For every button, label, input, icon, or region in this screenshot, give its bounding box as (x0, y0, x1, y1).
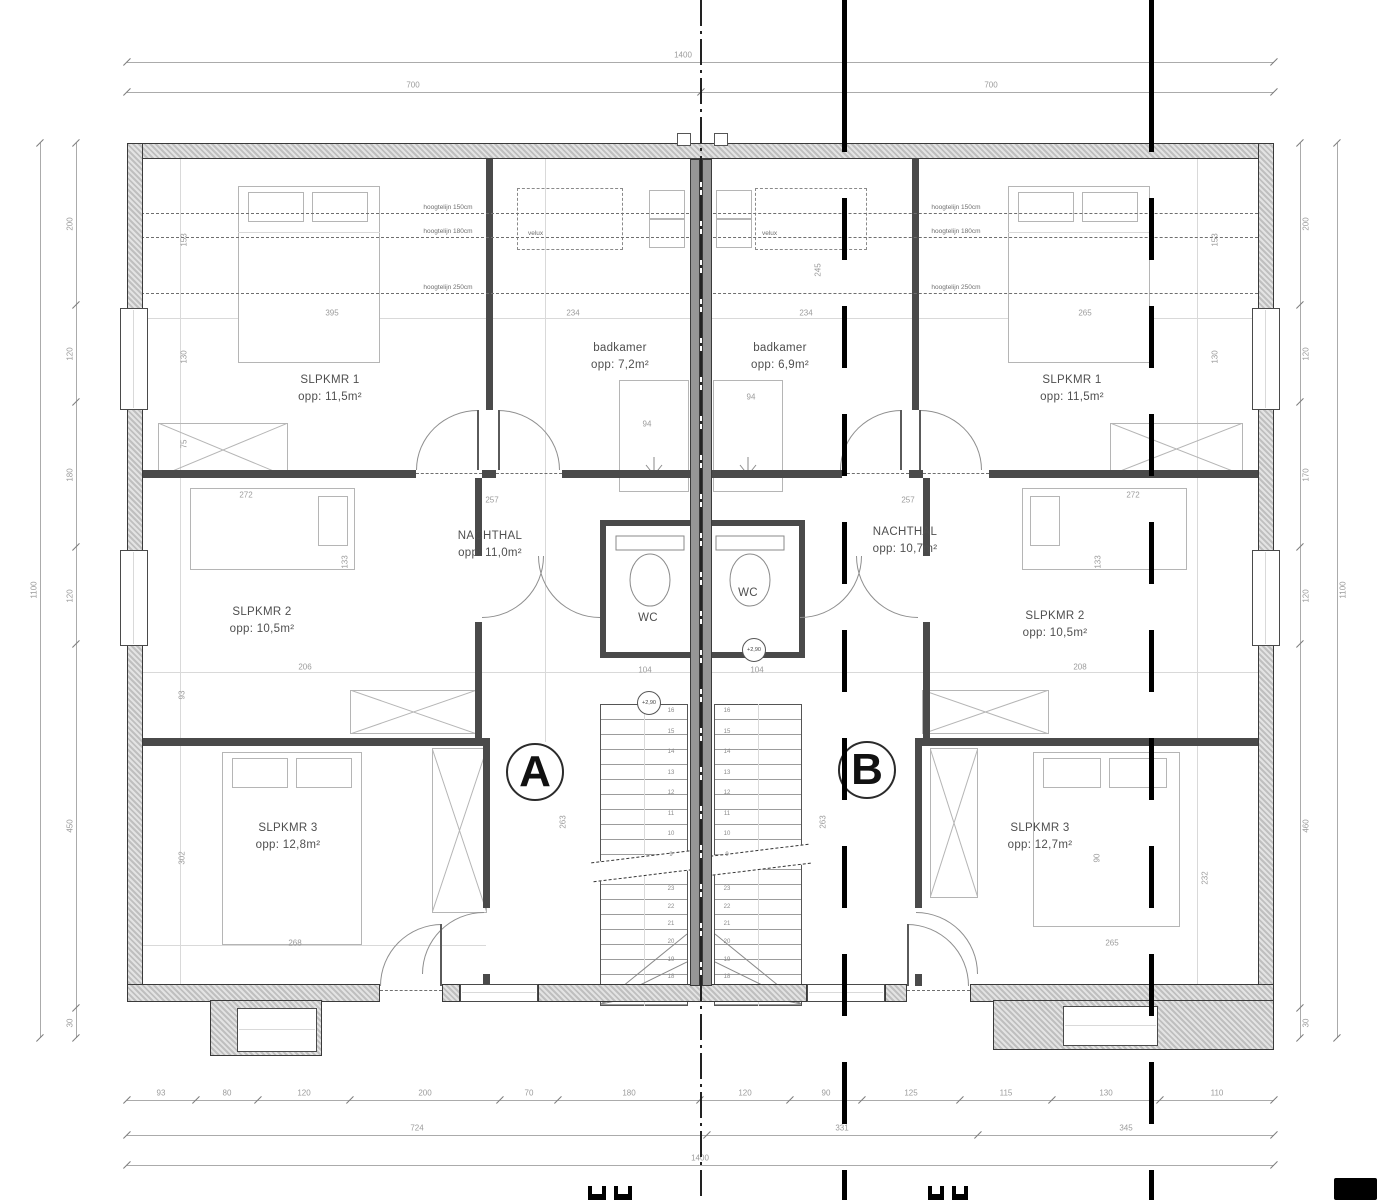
height-line-label: hoogtelijn 180cm (931, 228, 980, 235)
room-name: SLPKMR 3 (960, 820, 1120, 837)
room-name: SLPKMR 2 (182, 604, 342, 621)
roof-height-line (141, 213, 694, 214)
interior-wall (915, 738, 1258, 746)
washbasin (716, 219, 752, 248)
dim-tick (1296, 1034, 1304, 1042)
window (120, 550, 148, 646)
section-cut-line (842, 90, 847, 1200)
dim-tick (1333, 1034, 1341, 1042)
door-arc (380, 924, 442, 986)
stair-step-number: 12 (722, 790, 732, 796)
cropped-text-fragment (956, 1186, 964, 1194)
washbasin (649, 219, 685, 248)
stair-step-numbers: 23222120191817 (722, 886, 732, 998)
dim-label: 130 (1099, 1089, 1112, 1098)
bed-fold-line (238, 232, 380, 233)
interior-wall (141, 470, 416, 478)
door-arc (498, 410, 560, 470)
dim-label: 700 (984, 81, 997, 90)
room-area: opp: 11,0m² (410, 545, 570, 562)
room-label-b-nachthal: NACHTHAL opp: 10,7m² (825, 524, 985, 557)
stair-step-number: 15 (722, 729, 732, 735)
exterior-wall-bottom (442, 984, 460, 1002)
dim-label: 460 (1302, 819, 1311, 832)
dim-label: 90 (822, 1089, 831, 1098)
dim-tick (1270, 1096, 1278, 1104)
threshold (923, 473, 989, 474)
room-area: opp: 12,7m² (960, 837, 1120, 854)
velux-label: velux (528, 230, 543, 237)
dim-label: 180 (622, 1089, 635, 1098)
wardrobe-icon (432, 748, 487, 913)
window-glass-line (462, 992, 536, 993)
dim-label: 263 (559, 815, 568, 828)
room-label-a-slpkmr1: SLPKMR 1 opp: 11,5m² (250, 372, 410, 405)
dim-label: 450 (66, 819, 75, 832)
stair-step-number: 9 (666, 852, 676, 858)
construction-line (1197, 159, 1198, 986)
chimney-tab (714, 133, 728, 146)
room-label-a-badkamer: badkamer opp: 7,2m² (555, 340, 685, 373)
stair-step-number: 12 (666, 790, 676, 796)
room-label-a-slpkmr2: SLPKMR 2 opp: 10,5m² (182, 604, 342, 637)
dim-label: 257 (485, 496, 498, 505)
room-label-a-nachthal: NACHTHAL opp: 11,0m² (410, 528, 570, 561)
room-name: SLPKMR 3 (208, 820, 368, 837)
dim-label: 200 (1302, 217, 1311, 230)
dim-label: 234 (799, 309, 812, 318)
door-leaf (498, 410, 500, 470)
dim-label: 104 (750, 666, 763, 675)
interior-wall (141, 738, 490, 746)
roof-height-line (708, 213, 1258, 214)
roof-height-line (141, 237, 694, 238)
interior-wall (915, 746, 922, 908)
threshold (496, 473, 562, 474)
room-name: SLPKMR 2 (975, 608, 1135, 625)
dim-label: 94 (747, 393, 756, 402)
room-label-a-slpkmr3: SLPKMR 3 opp: 12,8m² (208, 820, 368, 853)
door-leaf (440, 924, 442, 986)
roof-height-line (141, 293, 694, 294)
window-glass-line (239, 1029, 315, 1030)
dim-label: 94 (643, 420, 652, 429)
stair-step-number: 22 (722, 904, 732, 910)
interior-wall (909, 470, 923, 478)
dim-label: 130 (1211, 350, 1220, 363)
wc-wall (600, 520, 606, 658)
door-leaf (477, 410, 479, 470)
height-line-label: hoogtelijn 250cm (931, 284, 980, 291)
dim-label: 265 (1078, 309, 1091, 318)
wc-wall (600, 652, 694, 658)
dim-label: 200 (66, 217, 75, 230)
toilet-icon (614, 534, 686, 612)
dim-label: 345 (1119, 1124, 1132, 1133)
interior-wall (989, 470, 1258, 478)
door-arc (416, 410, 478, 470)
dim-line (76, 143, 77, 1038)
unit-letter-a: A (506, 743, 564, 801)
stair-step-number: 18 (722, 974, 732, 980)
dim-label: 232 (1201, 871, 1210, 884)
roof-height-line (708, 293, 1258, 294)
stair-step-numbers: 161514131211109 (722, 708, 732, 858)
door-arc (920, 410, 982, 470)
dim-label: 93 (157, 1089, 166, 1098)
window-glass-line (1065, 1025, 1156, 1026)
room-area: opp: 10,5m² (975, 625, 1135, 642)
stair-step-number: 22 (666, 904, 676, 910)
dim-label: 75 (180, 440, 189, 449)
interior-wall (711, 470, 842, 478)
velux-label: velux (762, 230, 777, 237)
stair-step-number: 23 (666, 886, 676, 892)
dim-tick (36, 1034, 44, 1042)
exterior-wall-bottom (885, 984, 907, 1002)
dim-label: 234 (566, 309, 579, 318)
dim-label: 120 (66, 589, 75, 602)
stair-step-number: 15 (666, 729, 676, 735)
wardrobe-icon (922, 690, 1049, 734)
cropped-logo-fragment (1334, 1178, 1377, 1200)
wardrobe-icon (1110, 423, 1243, 475)
dim-label: 170 (1302, 468, 1311, 481)
stair-step-numbers: 23222120191817 (666, 886, 676, 998)
window-glass-line (133, 310, 134, 408)
room-name: badkamer (555, 340, 685, 357)
cropped-text-fragment (592, 1186, 602, 1194)
interior-wall (486, 159, 493, 410)
dim-label: 125 (904, 1089, 917, 1098)
dim-tick (1270, 1161, 1278, 1169)
velux-skylight (517, 188, 623, 250)
pillow (1018, 192, 1074, 222)
dim-tick (1270, 88, 1278, 96)
dim-tick (1270, 1131, 1278, 1139)
stair-step-number: 16 (666, 708, 676, 714)
dim-label: 206 (298, 663, 311, 672)
stair-step-number: 14 (722, 749, 732, 755)
section-cut-line (1149, 90, 1154, 1200)
door-leaf (907, 924, 909, 986)
dim-label: 80 (223, 1089, 232, 1098)
dim-label: 1400 (674, 51, 692, 60)
room-label-b-slpkmr2: SLPKMR 2 opp: 10,5m² (975, 608, 1135, 641)
stair-step-numbers: 161514131211109 (666, 708, 676, 858)
pillow (232, 758, 288, 788)
roof-height-line (708, 237, 1258, 238)
room-label-a-wc: WC (618, 610, 678, 627)
window (460, 984, 538, 1002)
party-wall (690, 159, 700, 986)
washbasin (716, 190, 752, 219)
dim-line (40, 143, 41, 1038)
dim-label: 120 (1302, 589, 1311, 602)
window-glass-line (1265, 310, 1266, 408)
window (120, 308, 148, 410)
dim-label: 30 (1302, 1019, 1311, 1028)
wc-wall (600, 520, 694, 526)
dim-label: 130 (180, 350, 189, 363)
room-area: opp: 10,5m² (182, 621, 342, 638)
stair-step-number: 18 (666, 974, 676, 980)
window (237, 1008, 317, 1052)
dim-label: 1100 (1339, 581, 1348, 598)
velux-skylight (755, 188, 867, 250)
dim-label: 115 (1000, 1089, 1013, 1098)
stair-step-number: 16 (722, 708, 732, 714)
pillow (248, 192, 304, 222)
door-arc (538, 556, 600, 618)
interior-wall (923, 622, 930, 742)
cropped-text-fragment (618, 1186, 628, 1194)
party-wall-centerline (700, 0, 702, 1200)
height-line-label: hoogtelijn 150cm (931, 204, 980, 211)
stair-step-number: 9 (722, 852, 732, 858)
stair-step-number: 13 (666, 770, 676, 776)
threshold (907, 990, 970, 991)
room-area: opp: 7,2m² (555, 357, 685, 374)
stair-step-number: 20 (666, 939, 676, 945)
bed-fold-line (1008, 232, 1150, 233)
dim-label: 302 (178, 851, 187, 864)
dim-tick (1270, 58, 1278, 66)
room-label-b-slpkmr3: SLPKMR 3 opp: 12,7m² (960, 820, 1120, 853)
stair-step-number: 10 (722, 831, 732, 837)
threshold (416, 473, 482, 474)
door-arc (800, 556, 862, 618)
dim-label: 120 (1302, 347, 1311, 360)
interior-wall (562, 470, 694, 478)
threshold (380, 990, 442, 991)
room-name: SLPKMR 1 (992, 372, 1152, 389)
door-leaf (919, 410, 921, 470)
section-cut-line (1149, 0, 1154, 90)
wardrobe-icon (158, 423, 288, 477)
room-name: SLPKMR 1 (250, 372, 410, 389)
window (1252, 550, 1280, 646)
section-cut-line (842, 0, 847, 90)
dim-label: 272 (239, 491, 252, 500)
dim-label: 90 (1093, 854, 1102, 863)
level-marker: +2,90 (742, 638, 766, 662)
pillow (1082, 192, 1138, 222)
dim-label: 700 (406, 81, 419, 90)
window-glass-line (1265, 552, 1266, 644)
dim-label: 153 (180, 233, 189, 246)
stair-step-number: 23 (722, 886, 732, 892)
interior-wall (483, 746, 490, 908)
dim-label: 272 (1126, 491, 1139, 500)
stair-step-number: 19 (666, 957, 676, 963)
dim-label: 200 (418, 1089, 431, 1098)
dim-label: 70 (525, 1089, 534, 1098)
room-name: WC (618, 610, 678, 627)
stair-step-number: 21 (722, 921, 732, 927)
dim-label: 724 (410, 1124, 423, 1133)
pillow (318, 496, 348, 546)
wardrobe-icon (350, 690, 477, 734)
dim-label: 30 (66, 1019, 75, 1028)
dim-label: 180 (66, 468, 75, 481)
stair-step-number: 14 (666, 749, 676, 755)
room-name: badkamer (715, 340, 845, 357)
wc-wall (711, 520, 805, 526)
room-area: opp: 11,5m² (992, 389, 1152, 406)
door-leaf (900, 410, 902, 470)
dim-label: 120 (66, 347, 75, 360)
room-name: WC (718, 585, 778, 602)
pillow (312, 192, 368, 222)
room-label-b-badkamer: badkamer opp: 6,9m² (715, 340, 845, 373)
room-area: opp: 6,9m² (715, 357, 845, 374)
room-area: opp: 11,5m² (250, 389, 410, 406)
pillow (1043, 758, 1101, 788)
dim-label: 263 (819, 815, 828, 828)
dim-label: 268 (288, 939, 301, 948)
stair-step-number: 20 (722, 939, 732, 945)
height-line-label: hoogtelijn 250cm (423, 284, 472, 291)
stair-step-number: 13 (722, 770, 732, 776)
dim-label: 208 (1073, 663, 1086, 672)
dim-label: 133 (1094, 555, 1103, 568)
dim-label: 395 (325, 309, 338, 318)
threshold (842, 473, 909, 474)
dim-label: 133 (341, 555, 350, 568)
cropped-text-fragment (932, 1186, 940, 1194)
door-arc (482, 556, 544, 618)
dim-label: 1100 (30, 581, 39, 598)
level-marker: +2,90 (637, 691, 661, 715)
room-name: NACHTHAL (825, 524, 985, 541)
door-arc (856, 556, 918, 618)
dim-label: 153 (1211, 233, 1220, 246)
dim-label: 245 (814, 263, 823, 276)
window (1252, 308, 1280, 410)
stair-step-number: 19 (722, 957, 732, 963)
party-wall (702, 159, 712, 986)
dim-tick (72, 1034, 80, 1042)
interior-wall (912, 159, 919, 410)
dim-label: 120 (297, 1089, 310, 1098)
dim-label: 110 (1211, 1089, 1224, 1098)
dim-label: 120 (738, 1089, 751, 1098)
pillow (1109, 758, 1167, 788)
washbasin (649, 190, 685, 219)
stair-step-number: 11 (666, 811, 676, 817)
room-label-b-slpkmr1: SLPKMR 1 opp: 11,5m² (992, 372, 1152, 405)
chimney-tab (677, 133, 691, 146)
stair-step-number: 11 (722, 811, 732, 817)
dim-label: 265 (1105, 939, 1118, 948)
pillow (1030, 496, 1060, 546)
interior-wall (475, 622, 482, 742)
door-arc (840, 410, 902, 470)
room-area: opp: 10,7m² (825, 541, 985, 558)
stair-step-number: 21 (666, 921, 676, 927)
dim-label: 257 (901, 496, 914, 505)
window (1063, 1006, 1158, 1046)
room-label-b-wc: WC (718, 585, 778, 602)
exterior-wall-bottom (538, 984, 807, 1002)
stair-step-number: 10 (666, 831, 676, 837)
height-line-label: hoogtelijn 150cm (423, 204, 472, 211)
interior-wall (482, 470, 496, 478)
floor-plan-sheet: velux velux 161514131211109 232221201918… (0, 0, 1377, 1200)
dim-label: 93 (178, 691, 187, 700)
window-glass-line (133, 552, 134, 644)
dim-label: 104 (638, 666, 651, 675)
room-area: opp: 12,8m² (208, 837, 368, 854)
pillow (296, 758, 352, 788)
room-name: NACHTHAL (410, 528, 570, 545)
height-line-label: hoogtelijn 180cm (423, 228, 472, 235)
